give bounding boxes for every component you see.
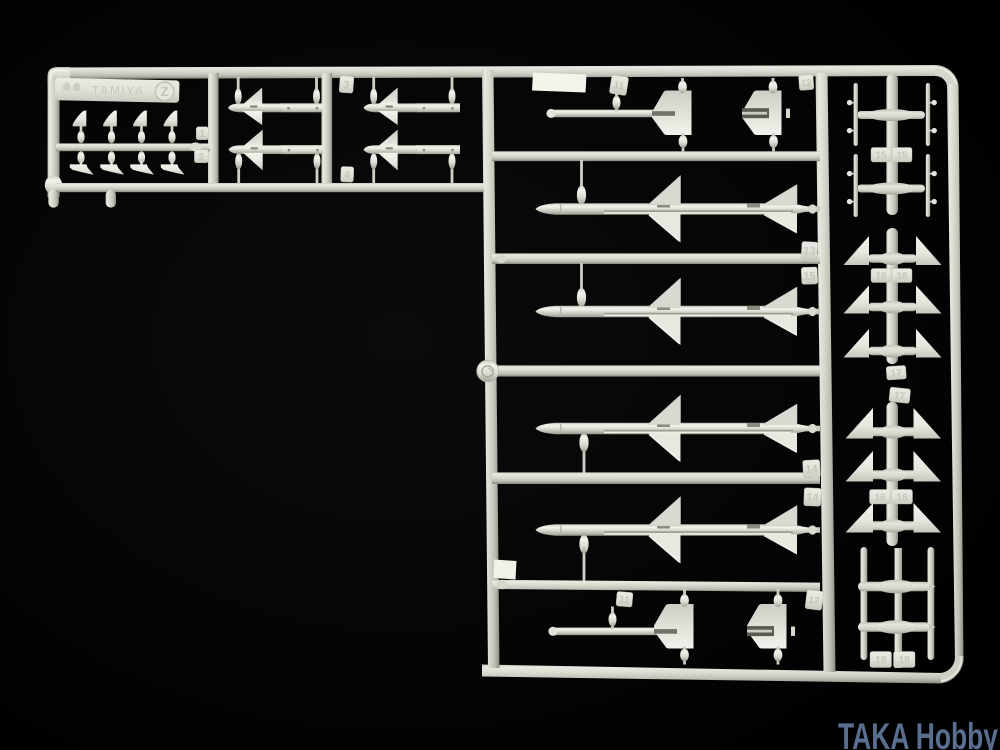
svg-text:1: 1 <box>200 129 206 140</box>
svg-text:14: 14 <box>805 463 819 476</box>
svg-text:16: 16 <box>874 492 886 503</box>
svg-text:15: 15 <box>896 150 908 161</box>
svg-text:11: 11 <box>619 594 631 606</box>
svg-text:13: 13 <box>803 245 816 258</box>
svg-text:16: 16 <box>896 271 908 282</box>
svg-text:16: 16 <box>875 271 887 282</box>
svg-text:TAKA Hobby: TAKA Hobby <box>838 716 998 750</box>
svg-text:17: 17 <box>890 368 902 380</box>
svg-text:12: 12 <box>800 78 812 90</box>
svg-text:TAMIYA: TAMIYA <box>92 83 145 98</box>
svg-text:18: 18 <box>875 655 887 666</box>
svg-text:15: 15 <box>875 150 887 161</box>
svg-text:16: 16 <box>896 492 908 503</box>
svg-text:3: 3 <box>343 79 350 91</box>
svg-text:12: 12 <box>808 595 821 607</box>
svg-text:19: 19 <box>899 655 911 666</box>
svg-text:11: 11 <box>613 80 626 93</box>
svg-text:2: 2 <box>199 152 205 163</box>
svg-text:14: 14 <box>806 492 820 504</box>
svg-text:Z: Z <box>160 84 168 99</box>
svg-text:15: 15 <box>803 270 816 282</box>
svg-text:17: 17 <box>894 390 907 402</box>
